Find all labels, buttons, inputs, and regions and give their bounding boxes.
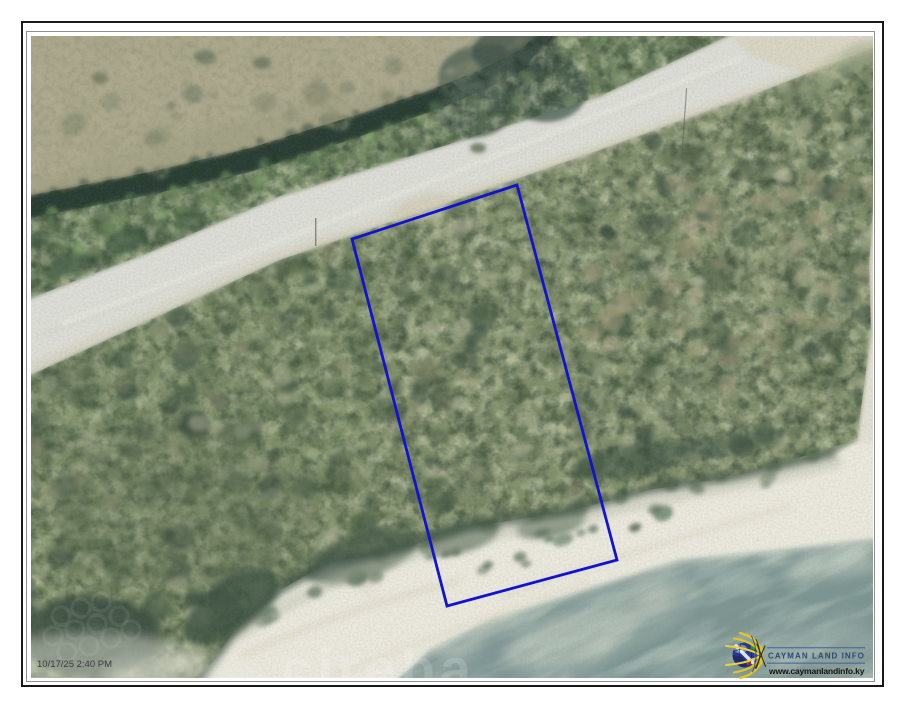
svg-text:cireba: cireba bbox=[281, 637, 476, 678]
svg-text:CAYMAN LAND INFO: CAYMAN LAND INFO bbox=[768, 652, 865, 661]
svg-text:www.caymanlandinfo.ky: www.caymanlandinfo.ky bbox=[768, 666, 865, 676]
